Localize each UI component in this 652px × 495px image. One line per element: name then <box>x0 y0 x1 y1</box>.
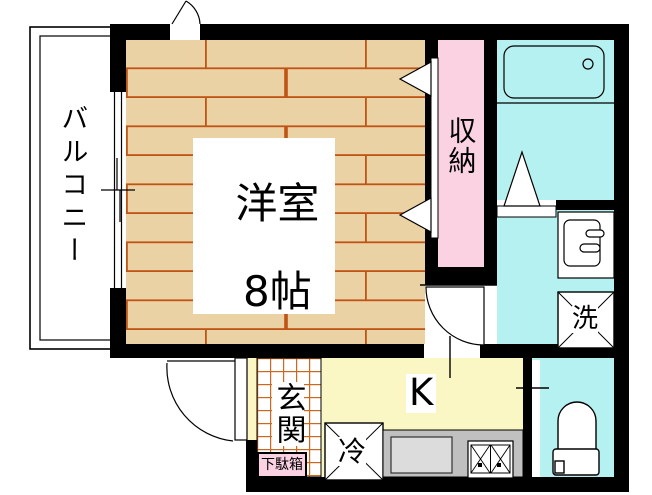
kitchen-sink-icon <box>391 437 452 473</box>
wall-toilet-left <box>523 358 532 477</box>
front-door-icon <box>167 358 247 441</box>
shoe-cabinet-label: 下駄箱 <box>257 452 307 478</box>
main-room-size: 8帖 <box>243 267 312 316</box>
faucet-lever-icon <box>580 244 600 252</box>
washroom-doorway-opening <box>484 285 497 344</box>
washbasin-icon <box>564 220 600 266</box>
main-room-name: 洋室 <box>235 179 319 228</box>
fridge-label: 冷 <box>338 437 366 466</box>
vent-door-icon <box>172 1 200 24</box>
toilet-icon <box>553 402 599 475</box>
balcony-label: バルコニー <box>57 104 85 269</box>
main-room-label: 洋室 8帖 <box>193 138 335 314</box>
bathtub-drain-icon <box>583 59 593 69</box>
kitchen-label: K <box>406 374 436 413</box>
wall-closet-bottom <box>425 267 497 285</box>
bath-door-track <box>497 206 556 217</box>
faucet-icon <box>586 230 604 237</box>
toilet-doorway-opening <box>532 360 540 477</box>
closet-label: 収納 <box>446 116 475 176</box>
wall-bottom <box>246 477 629 492</box>
wall-entry-left <box>246 440 257 477</box>
wall-closet-right <box>484 40 497 267</box>
floor-plan: バルコニー 洋室 8帖 収納 洗 K 冷 玄関 下駄箱 <box>0 0 652 495</box>
stove-icon <box>468 441 513 478</box>
washing-machine-label: 洗 <box>572 306 598 333</box>
entrance-label: 玄関 <box>272 382 304 446</box>
wall-right <box>614 24 629 491</box>
wall-middle <box>110 344 629 358</box>
top-vent-opening <box>170 24 200 40</box>
bathtub-icon <box>504 46 604 98</box>
kitchen-doorway-opening <box>424 344 480 358</box>
